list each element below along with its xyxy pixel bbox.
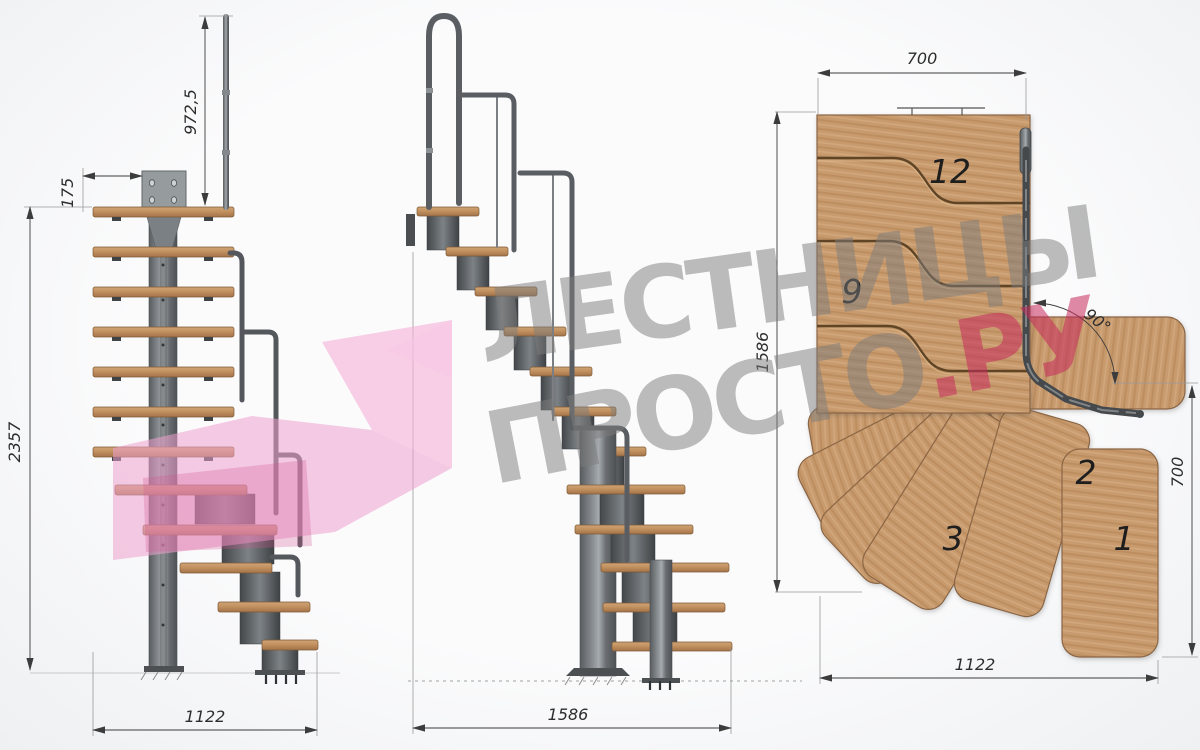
front-elevation-view: 972,5 175 2357 1122 xyxy=(5,14,340,736)
page: { "watermark": { "line1": "ЛЕСТНИЦЫ", "l… xyxy=(0,0,1200,750)
wall-bracket xyxy=(406,214,415,246)
dim-total-height: 2357 xyxy=(5,421,24,463)
dim-plan-top-width: 700 xyxy=(907,49,938,68)
side-elevation-view: 1586 xyxy=(406,16,802,734)
dim-plan-bottom-width: 1122 xyxy=(955,655,996,674)
plan-view: 12 9 3 2 1 700 1586 90° 700 1122 xyxy=(753,49,1198,684)
column-base-plate xyxy=(144,666,184,672)
dim-footprint-width: 1122 xyxy=(185,707,226,726)
step-label-2: 2 xyxy=(1076,453,1097,492)
wall-mount-plate xyxy=(142,171,186,210)
upper-flight-panel xyxy=(817,115,1030,413)
wall-bracket-plan xyxy=(897,108,985,115)
dim-plan-left-depth: 1586 xyxy=(753,332,772,373)
step-label-12: 12 xyxy=(929,152,971,191)
dim-rail-height: 972,5 xyxy=(181,89,200,135)
step-label-9: 9 xyxy=(842,272,863,311)
step-label-3: 3 xyxy=(943,519,964,558)
dim-total-run: 1586 xyxy=(548,705,589,724)
dim-plan-right-depth: 700 xyxy=(1168,457,1187,488)
dim-plate-offset: 175 xyxy=(58,178,77,209)
step-label-1: 1 xyxy=(1114,519,1135,558)
staircase-technical-drawing: 972,5 175 2357 1122 xyxy=(0,0,1200,750)
